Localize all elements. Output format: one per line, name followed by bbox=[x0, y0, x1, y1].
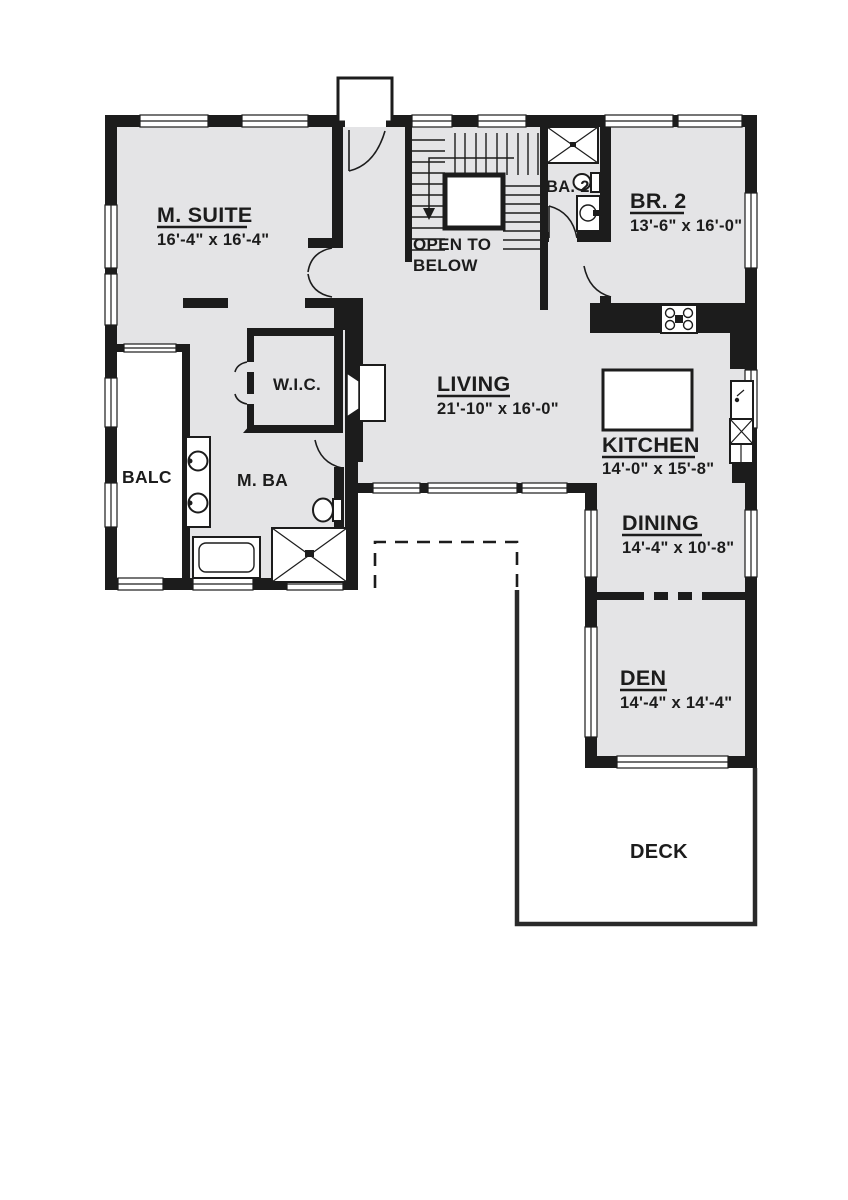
floor-plan-page: M. SUITE 16'-4" x 16'-4" BR. 2 13'-6" x … bbox=[0, 0, 848, 1200]
wall-den-divider-left bbox=[585, 592, 630, 600]
window bbox=[193, 578, 253, 590]
wall-wic-junction bbox=[334, 298, 363, 330]
deck-slider bbox=[617, 756, 728, 768]
room-label-living: LIVING bbox=[437, 372, 510, 396]
window bbox=[242, 115, 308, 127]
room-label-balc: BALC bbox=[122, 467, 172, 487]
window bbox=[478, 115, 526, 127]
room-label-dining: DINING bbox=[622, 511, 699, 535]
balcony-slider bbox=[124, 344, 176, 352]
wall-wic-south bbox=[250, 425, 343, 433]
floor-plan: M. SUITE 16'-4" x 16'-4" BR. 2 13'-6" x … bbox=[0, 0, 848, 1200]
window bbox=[745, 193, 757, 268]
room-dims-kitchen: 14'-0" x 15'-8" bbox=[602, 460, 714, 478]
room-label-mba: M. BA bbox=[237, 470, 288, 490]
fill-balcony bbox=[117, 352, 183, 578]
wall-bath2-south-a bbox=[540, 232, 549, 242]
shower-ba2 bbox=[547, 127, 598, 163]
wall-stair-west bbox=[405, 127, 412, 262]
window bbox=[585, 627, 597, 737]
wall-wic-east bbox=[334, 328, 343, 433]
window bbox=[745, 510, 757, 577]
entry-door-opening bbox=[345, 115, 386, 127]
room-label-br2: BR. 2 bbox=[630, 189, 686, 213]
kitchen-cabinet-lower bbox=[732, 463, 745, 483]
wall-msuite-door-jamb bbox=[308, 238, 343, 248]
stair-void bbox=[445, 175, 503, 228]
window bbox=[105, 378, 117, 427]
window bbox=[428, 483, 517, 493]
room-dims-den: 14'-4" x 14'-4" bbox=[620, 694, 732, 712]
window bbox=[678, 115, 742, 127]
wall-wic-north bbox=[247, 328, 343, 336]
window bbox=[105, 274, 117, 325]
window bbox=[105, 205, 117, 268]
room-label-m-suite: M. SUITE bbox=[157, 203, 253, 227]
wall-br2-west bbox=[600, 121, 611, 232]
wall-msuite-south-a bbox=[183, 298, 228, 308]
room-label-kitchen: KITCHEN bbox=[602, 433, 700, 457]
vanity-double-sink bbox=[186, 437, 210, 527]
kitchen-tall-cabinet bbox=[730, 333, 745, 369]
window bbox=[585, 510, 597, 577]
room-label-wic: W.I.C. bbox=[273, 375, 321, 394]
window bbox=[522, 483, 567, 493]
wall-den-divider-right bbox=[714, 592, 757, 600]
room-label-den: DEN bbox=[620, 666, 666, 690]
pantry-cabinet bbox=[730, 419, 753, 463]
kitchen-island bbox=[603, 370, 692, 430]
wall-bath2-south-b bbox=[577, 232, 611, 242]
shower-mba bbox=[272, 528, 347, 582]
bathtub bbox=[193, 537, 260, 578]
room-dims-br2: 13'-6" x 16'-0" bbox=[630, 217, 742, 235]
room-dims-m-suite: 16'-4" x 16'-4" bbox=[157, 231, 269, 249]
overhang-dashed-line bbox=[375, 542, 517, 588]
wall-wic-west-a bbox=[247, 336, 254, 362]
label-open-to-below-2: BELOW bbox=[413, 256, 478, 275]
window bbox=[412, 115, 452, 127]
stove bbox=[661, 305, 697, 333]
room-dims-living: 21'-10" x 16'-0" bbox=[437, 400, 559, 418]
wall-wic-west-b bbox=[247, 372, 254, 394]
window bbox=[373, 483, 420, 493]
room-dims-dining: 14'-4" x 10'-8" bbox=[622, 539, 734, 557]
room-label-ba2: BA. 2 bbox=[546, 178, 590, 196]
sink-ba2 bbox=[577, 196, 600, 231]
label-open-to-below-1: OPEN TO bbox=[413, 235, 491, 254]
window bbox=[605, 115, 673, 127]
kitchen-sink bbox=[731, 381, 753, 419]
room-label-deck: DECK bbox=[630, 841, 688, 863]
fill-den bbox=[593, 590, 745, 760]
toilet-mba bbox=[313, 499, 342, 522]
window bbox=[118, 578, 163, 590]
window bbox=[140, 115, 208, 127]
window bbox=[105, 483, 117, 527]
wall-msuite-east bbox=[332, 121, 343, 238]
wall-wic-west-c bbox=[247, 404, 254, 433]
